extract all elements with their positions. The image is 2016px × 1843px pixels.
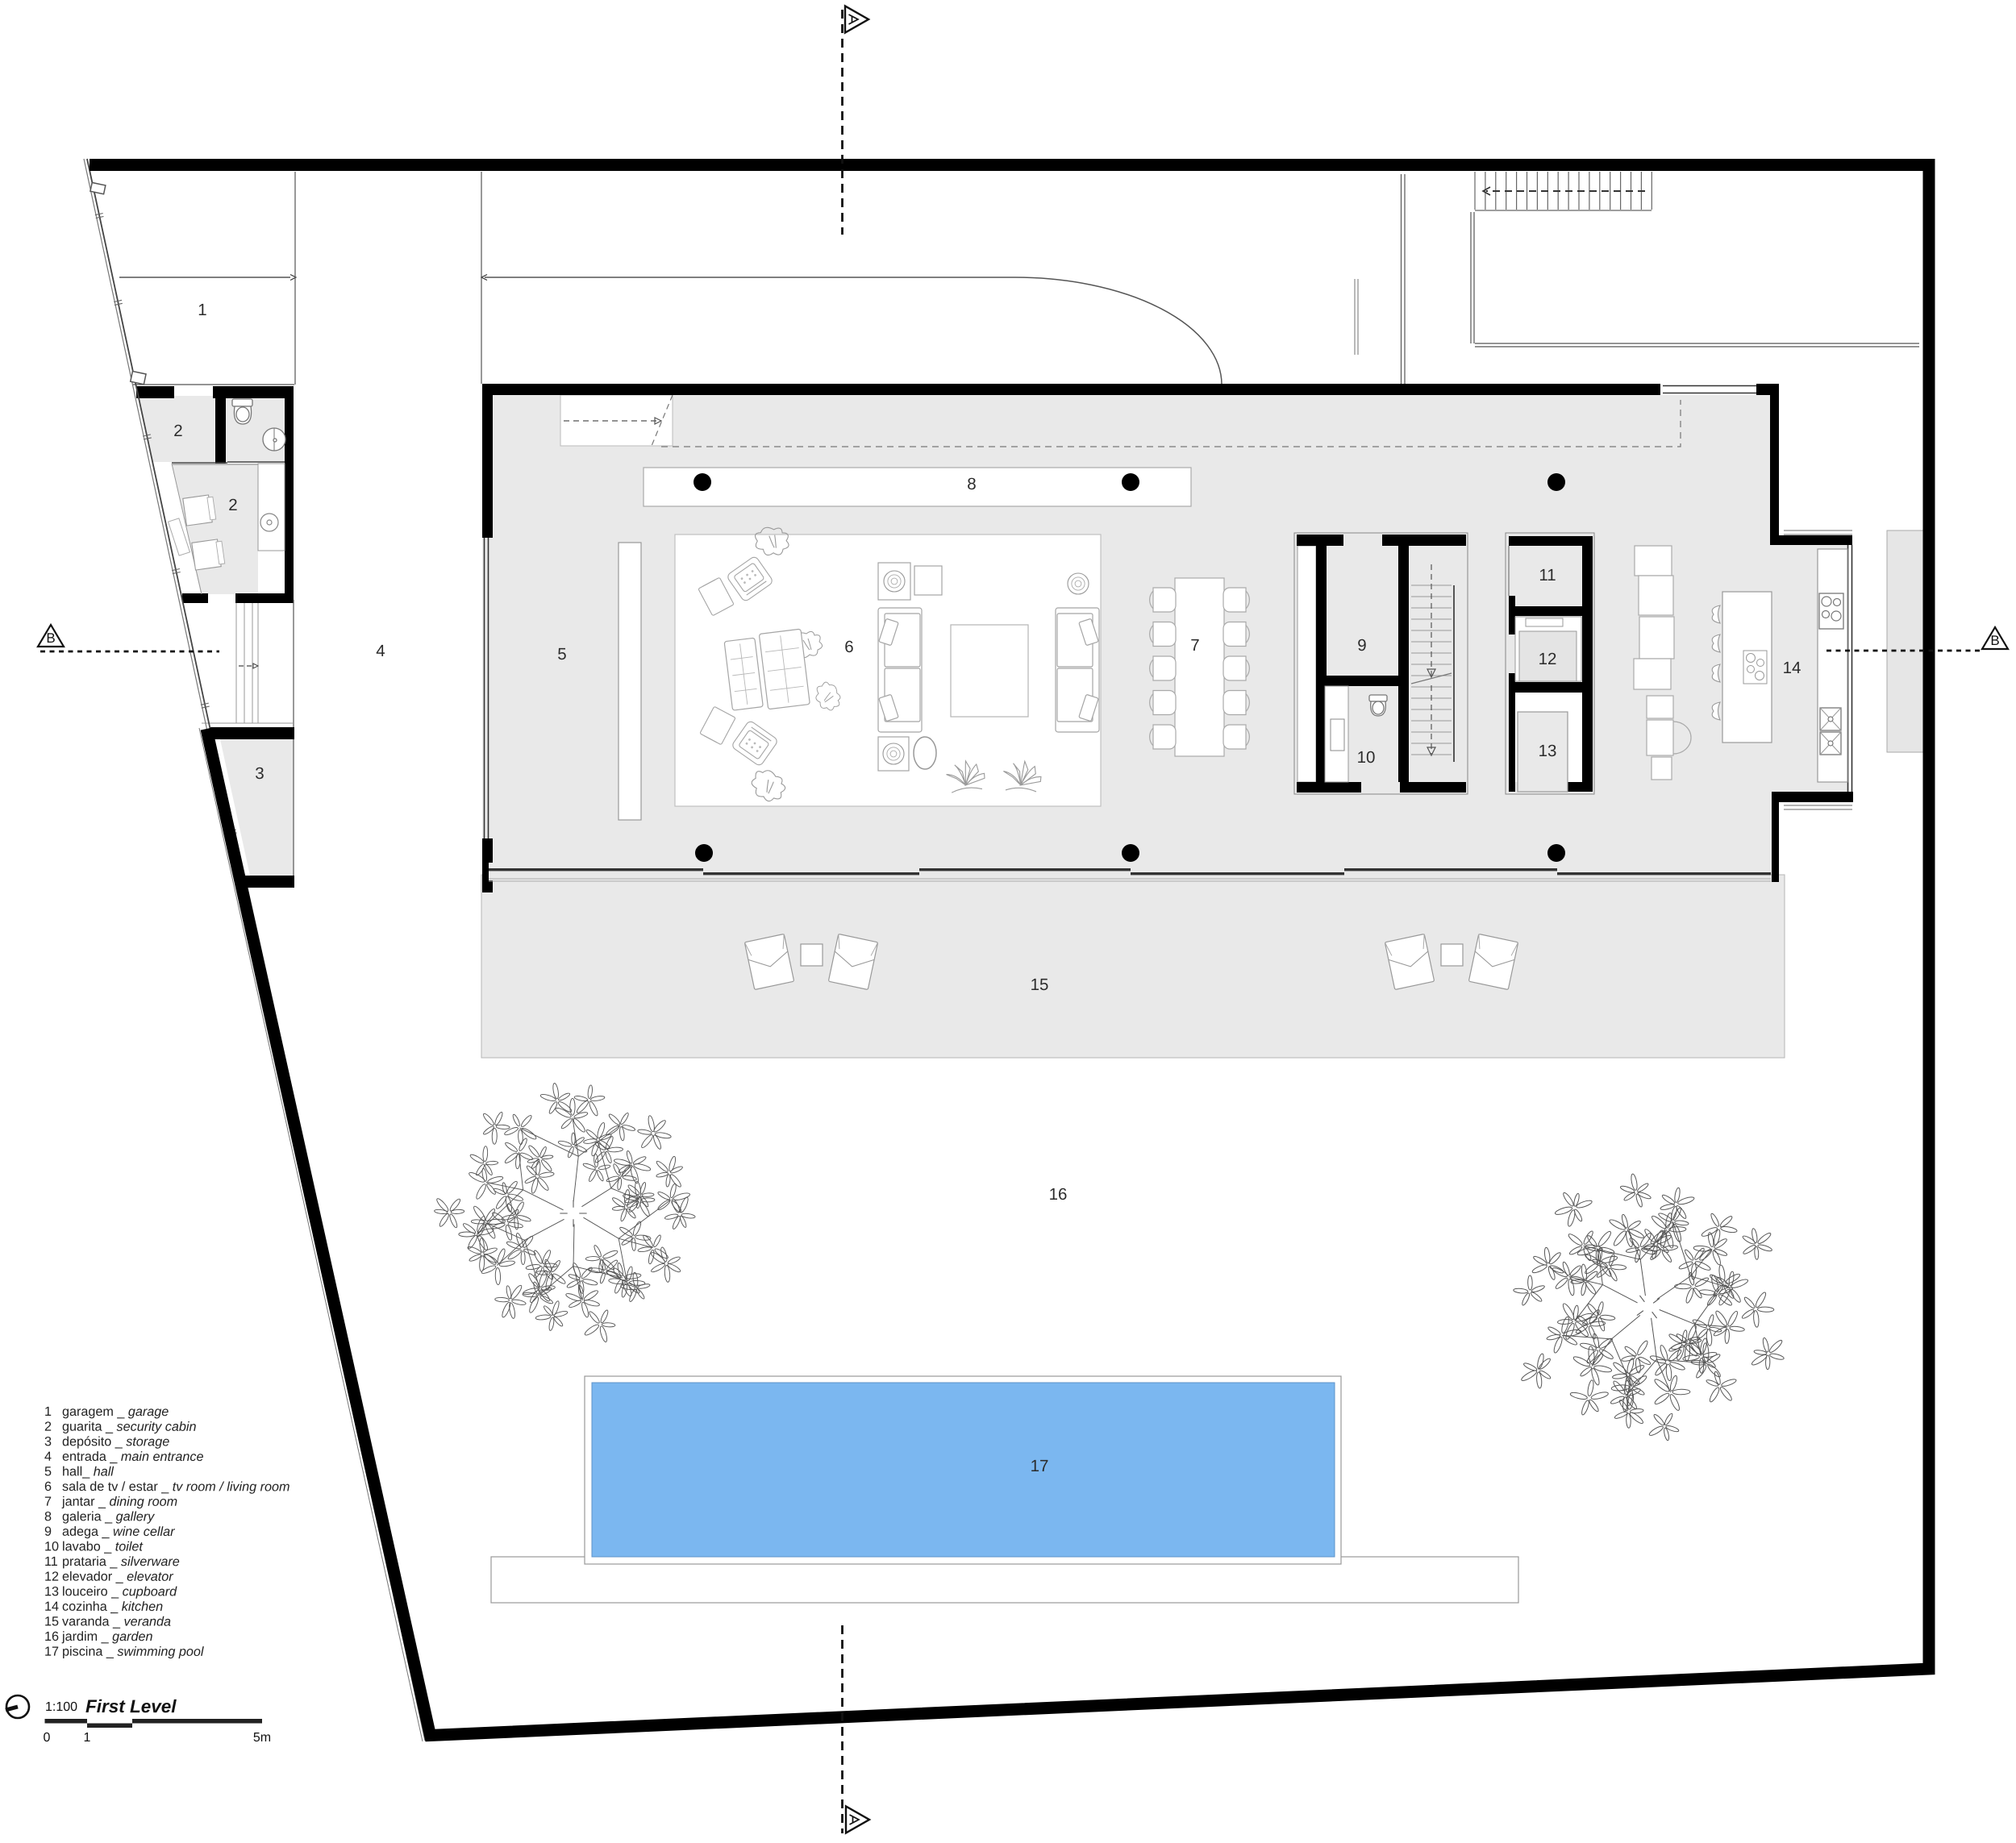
svg-text:12: 12	[44, 1570, 59, 1584]
svg-text:5: 5	[557, 645, 566, 664]
svg-text:14: 14	[44, 1600, 59, 1614]
svg-text:4: 4	[44, 1450, 52, 1464]
svg-text:B: B	[1990, 633, 1999, 648]
svg-text:piscina _ swimming pool: piscina _ swimming pool	[62, 1645, 204, 1659]
svg-text:jardim _ garden: jardim _ garden	[61, 1629, 153, 1644]
svg-text:16: 16	[44, 1629, 59, 1644]
svg-text:13: 13	[1539, 742, 1557, 760]
svg-text:5m: 5m	[253, 1731, 271, 1745]
svg-text:8: 8	[967, 475, 976, 493]
svg-text:5: 5	[44, 1464, 52, 1479]
svg-text:entrada _ main entrance: entrada _ main entrance	[62, 1450, 204, 1464]
svg-text:galeria _ gallery: galeria _ gallery	[62, 1509, 155, 1524]
svg-text:16: 16	[1049, 1185, 1068, 1204]
svg-text:First Level: First Level	[85, 1696, 177, 1716]
svg-text:6: 6	[44, 1479, 52, 1494]
svg-text:jantar _ dining room: jantar _ dining room	[61, 1495, 177, 1509]
svg-text:6: 6	[844, 638, 853, 656]
svg-text:2: 2	[228, 496, 237, 514]
svg-text:7: 7	[44, 1495, 52, 1509]
svg-text:9: 9	[44, 1525, 52, 1539]
svg-text:1: 1	[84, 1731, 91, 1745]
svg-text:2: 2	[44, 1420, 52, 1434]
svg-text:15: 15	[1031, 976, 1049, 994]
svg-text:11: 11	[1539, 566, 1556, 585]
svg-text:prataria _ silverware: prataria _ silverware	[62, 1554, 180, 1569]
svg-text:17: 17	[1031, 1457, 1049, 1475]
svg-text:depósito _ storage: depósito _ storage	[62, 1434, 169, 1449]
svg-text:10: 10	[44, 1539, 59, 1554]
svg-text:lavabo _ toilet: lavabo _ toilet	[62, 1539, 144, 1554]
svg-text:13: 13	[44, 1584, 59, 1599]
svg-text:hall_ hall: hall_ hall	[62, 1464, 114, 1479]
svg-text:1: 1	[44, 1404, 52, 1419]
svg-text:louceiro _ cupboard: louceiro _ cupboard	[62, 1584, 177, 1599]
svg-text:cozinha _ kitchen: cozinha _ kitchen	[62, 1600, 163, 1614]
svg-text:17: 17	[44, 1645, 59, 1659]
svg-text:varanda _ veranda: varanda _ veranda	[62, 1614, 171, 1629]
svg-text:9: 9	[1357, 636, 1366, 655]
svg-text:7: 7	[1190, 636, 1199, 655]
svg-text:4: 4	[376, 642, 385, 660]
svg-text:10: 10	[1357, 748, 1376, 767]
svg-text:15: 15	[44, 1614, 59, 1629]
svg-text:3: 3	[44, 1434, 52, 1449]
svg-text:sala de tv / estar _ tv room /: sala de tv / estar _ tv room / living ro…	[62, 1479, 290, 1494]
svg-text:1:100: 1:100	[45, 1700, 77, 1714]
svg-text:11: 11	[44, 1554, 58, 1569]
svg-text:B: B	[46, 630, 55, 646]
svg-text:0: 0	[44, 1731, 51, 1745]
svg-text:garagem _ garage: garagem _ garage	[62, 1404, 169, 1419]
svg-text:guarita _ security cabin: guarita _ security cabin	[62, 1420, 196, 1434]
svg-text:adega _ wine cellar: adega _ wine cellar	[62, 1525, 175, 1539]
svg-text:8: 8	[44, 1509, 52, 1524]
svg-text:14: 14	[1783, 659, 1801, 677]
svg-text:2: 2	[173, 422, 182, 440]
svg-text:1: 1	[198, 301, 206, 319]
svg-text:3: 3	[255, 764, 264, 783]
svg-text:elevador _ elevator: elevador _ elevator	[62, 1570, 173, 1584]
svg-text:12: 12	[1539, 650, 1557, 668]
